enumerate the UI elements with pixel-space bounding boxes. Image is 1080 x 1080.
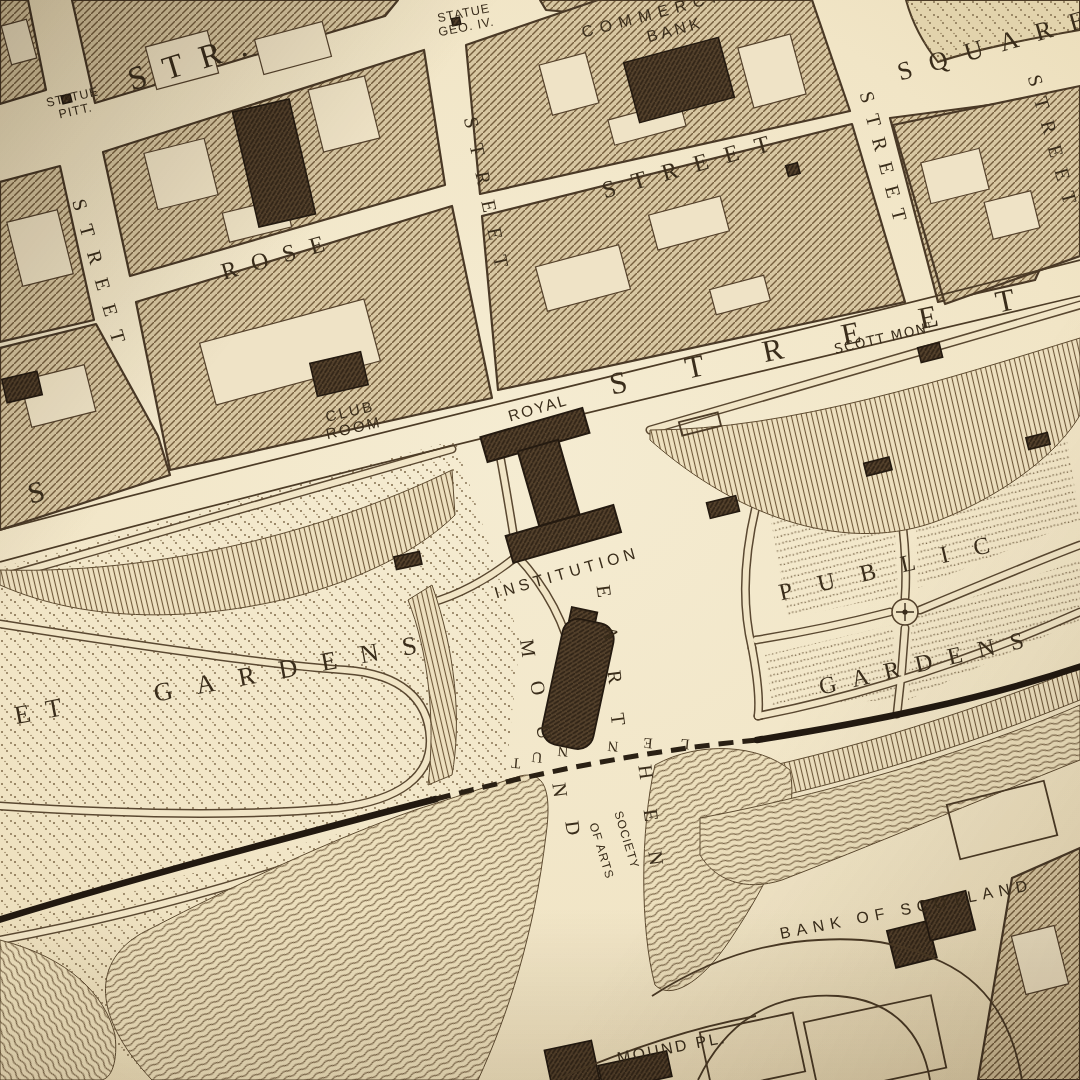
mound-letter: D xyxy=(561,819,585,836)
earthen-letter: H xyxy=(634,763,658,780)
vintage-edinburgh-map: STR. STATUE PITT. STATUE GEO. IV. COMMER… xyxy=(0,0,1080,1080)
earthen-letter: A xyxy=(599,624,623,641)
mound-letter: M xyxy=(516,638,541,659)
royal-institution-building xyxy=(478,407,621,563)
tunnel-letter: N xyxy=(607,737,619,755)
scott-monument-marker xyxy=(918,343,943,363)
mound-letter: N xyxy=(548,781,572,798)
tunnel-letter: U xyxy=(531,748,543,766)
tunnel-letter: E xyxy=(643,734,654,752)
tunnel-letter: L xyxy=(680,735,691,753)
tunnel-letter: T xyxy=(511,754,522,772)
tunnel-letter: N xyxy=(557,742,569,760)
mound-letter: O xyxy=(526,679,550,696)
fountain-marker xyxy=(892,599,918,625)
mound-letter: U xyxy=(532,723,556,740)
earthen-letter: N xyxy=(644,849,668,866)
map-engraving-canvas xyxy=(0,0,1080,1080)
